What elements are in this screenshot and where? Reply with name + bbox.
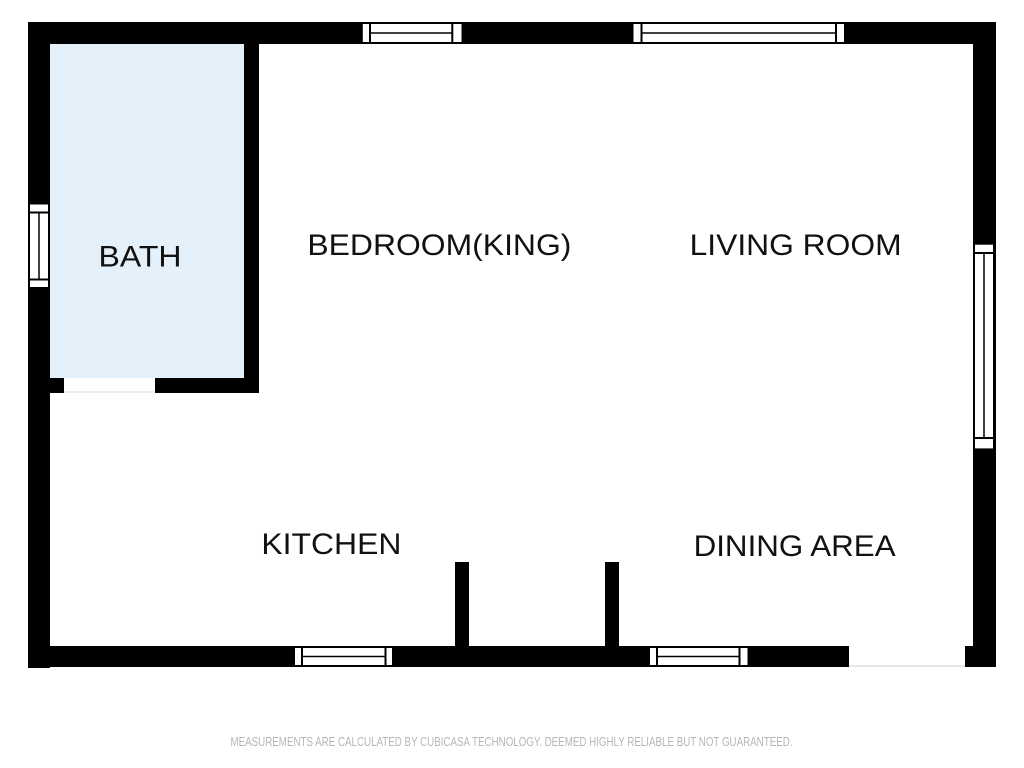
svg-text:DINING AREA: DINING AREA [694, 530, 896, 563]
svg-text:MEASUREMENTS ARE CALCULATED BY: MEASUREMENTS ARE CALCULATED BY CUBICASA … [231, 734, 793, 749]
svg-text:BATH: BATH [99, 241, 182, 274]
svg-text:KITCHEN: KITCHEN [261, 528, 401, 561]
svg-text:LIVING ROOM: LIVING ROOM [690, 229, 902, 262]
svg-text:BEDROOM(KING): BEDROOM(KING) [307, 229, 571, 262]
